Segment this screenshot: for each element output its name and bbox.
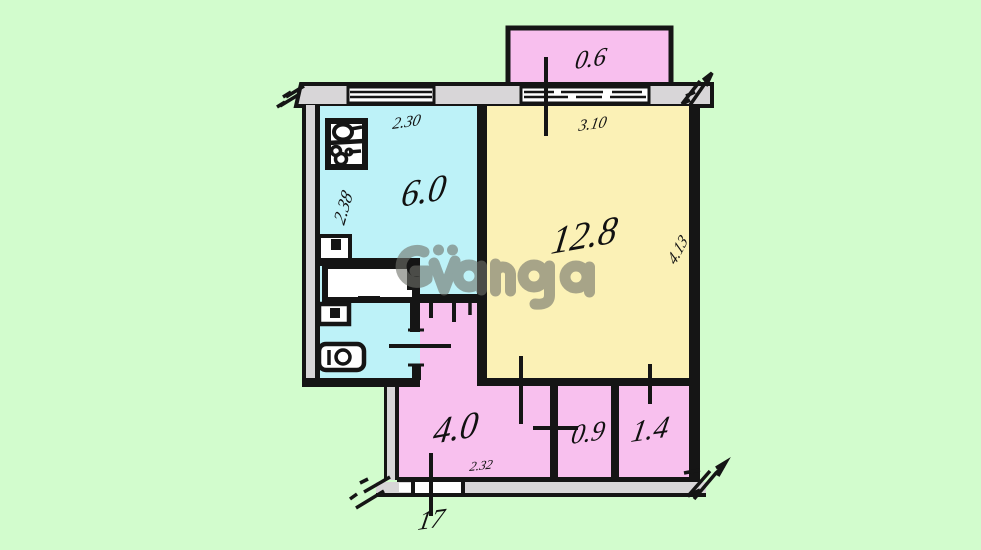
svg-text:1.4: 1.4	[629, 410, 672, 450]
svg-text:2.32: 2.32	[468, 457, 494, 474]
svg-text:0.6: 0.6	[573, 41, 609, 75]
svg-text:0.9: 0.9	[569, 414, 608, 450]
